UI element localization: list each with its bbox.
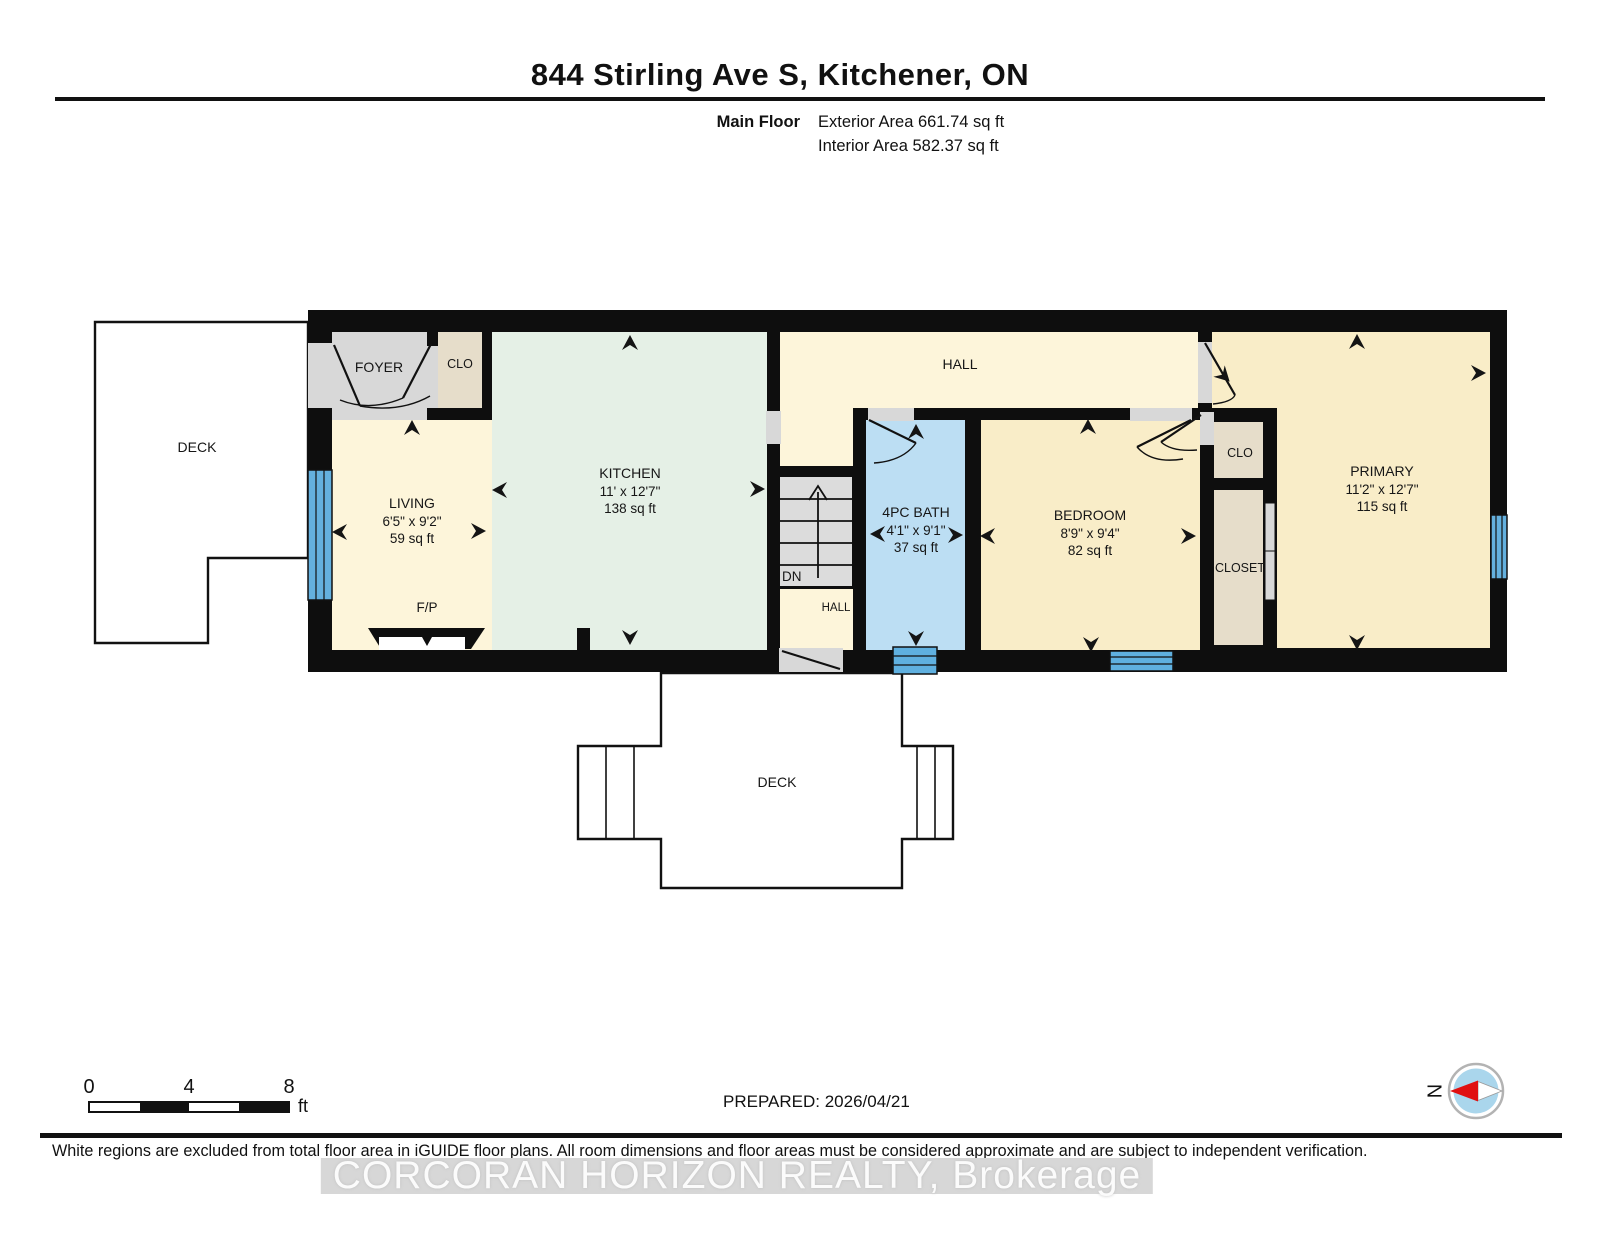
brokerage-watermark: CORCORAN HORIZON REALTY, Brokerage: [321, 1158, 1153, 1194]
kitchen-wall-stub: [577, 628, 590, 650]
hall-arm-floor: [780, 408, 853, 466]
primary-dims: 11'2" x 12'7": [1345, 482, 1418, 497]
bath-area: 37 sq ft: [894, 540, 939, 555]
primary-window: [1491, 515, 1507, 579]
entry-door-opening: [308, 343, 332, 408]
entry-closet-label: CLO: [447, 357, 473, 371]
fireplace-label: F/P: [416, 600, 437, 615]
footer-divider: [40, 1133, 1562, 1138]
hall-lower-label: HALL: [822, 602, 851, 614]
bedroom-closet-door-opening: [1200, 412, 1214, 445]
kitchen-area: 138 sq ft: [604, 501, 656, 516]
prepared-date: PREPARED: 2026/04/21: [723, 1092, 910, 1112]
hall-floor: [780, 332, 1198, 408]
primary-label: PRIMARY: [1350, 463, 1414, 479]
foyer-label: FOYER: [355, 359, 403, 375]
compass-icon: N: [1414, 1056, 1534, 1126]
bath-dims: 4'1" x 9'1": [886, 523, 945, 538]
compass-north-label: N: [1424, 1084, 1446, 1098]
bath-window: [893, 647, 937, 674]
primary-area: 115 sq ft: [1357, 499, 1408, 514]
bedroom-dims: 8'9" x 9'4": [1060, 526, 1119, 541]
kitchen-hall-opening: [766, 411, 781, 444]
stairs-dn-label: DN: [782, 569, 802, 584]
scale-bar: [88, 1101, 290, 1113]
kitchen-label: KITCHEN: [599, 465, 660, 481]
scale-tick-8: 8: [283, 1076, 294, 1099]
entry-closet-door-opening: [427, 346, 438, 408]
living-label: LIVING: [389, 495, 435, 511]
hall-label: HALL: [942, 356, 977, 372]
primary-closet-label: CLOSET: [1215, 561, 1265, 575]
scale-unit: ft: [298, 1096, 308, 1117]
bedroom-door-opening: [1130, 408, 1192, 421]
living-dims: 6'5" x 9'2": [382, 514, 441, 529]
living-area: 59 sq ft: [390, 531, 435, 546]
bedroom-label: BEDROOM: [1054, 507, 1126, 523]
deck-left-label: DECK: [178, 439, 218, 455]
bath-door-opening: [868, 408, 914, 421]
closet-slider-icon: [1265, 503, 1275, 600]
hall-lower-floor: [780, 589, 853, 650]
scale-tick-4: 4: [183, 1076, 194, 1099]
floor-plan: DECK FOYER CLO LIVING 6'5" x 9'2" 59 sq …: [0, 0, 1600, 1237]
deck-bottom-label: DECK: [758, 774, 798, 790]
kitchen-dims: 11' x 12'7": [600, 484, 661, 499]
scale-tick-0: 0: [83, 1076, 94, 1099]
living-window: [308, 470, 332, 600]
floor-plan-page: 844 Stirling Ave S, Kitchener, ON Main F…: [0, 0, 1600, 1237]
bath-label: 4PC BATH: [882, 504, 949, 520]
bedroom-area: 82 sq ft: [1068, 543, 1113, 558]
bedroom-closet-label: CLO: [1227, 446, 1253, 460]
deck-left: [95, 322, 308, 643]
fireplace-icon: [368, 628, 485, 650]
bedroom-window: [1110, 651, 1173, 671]
